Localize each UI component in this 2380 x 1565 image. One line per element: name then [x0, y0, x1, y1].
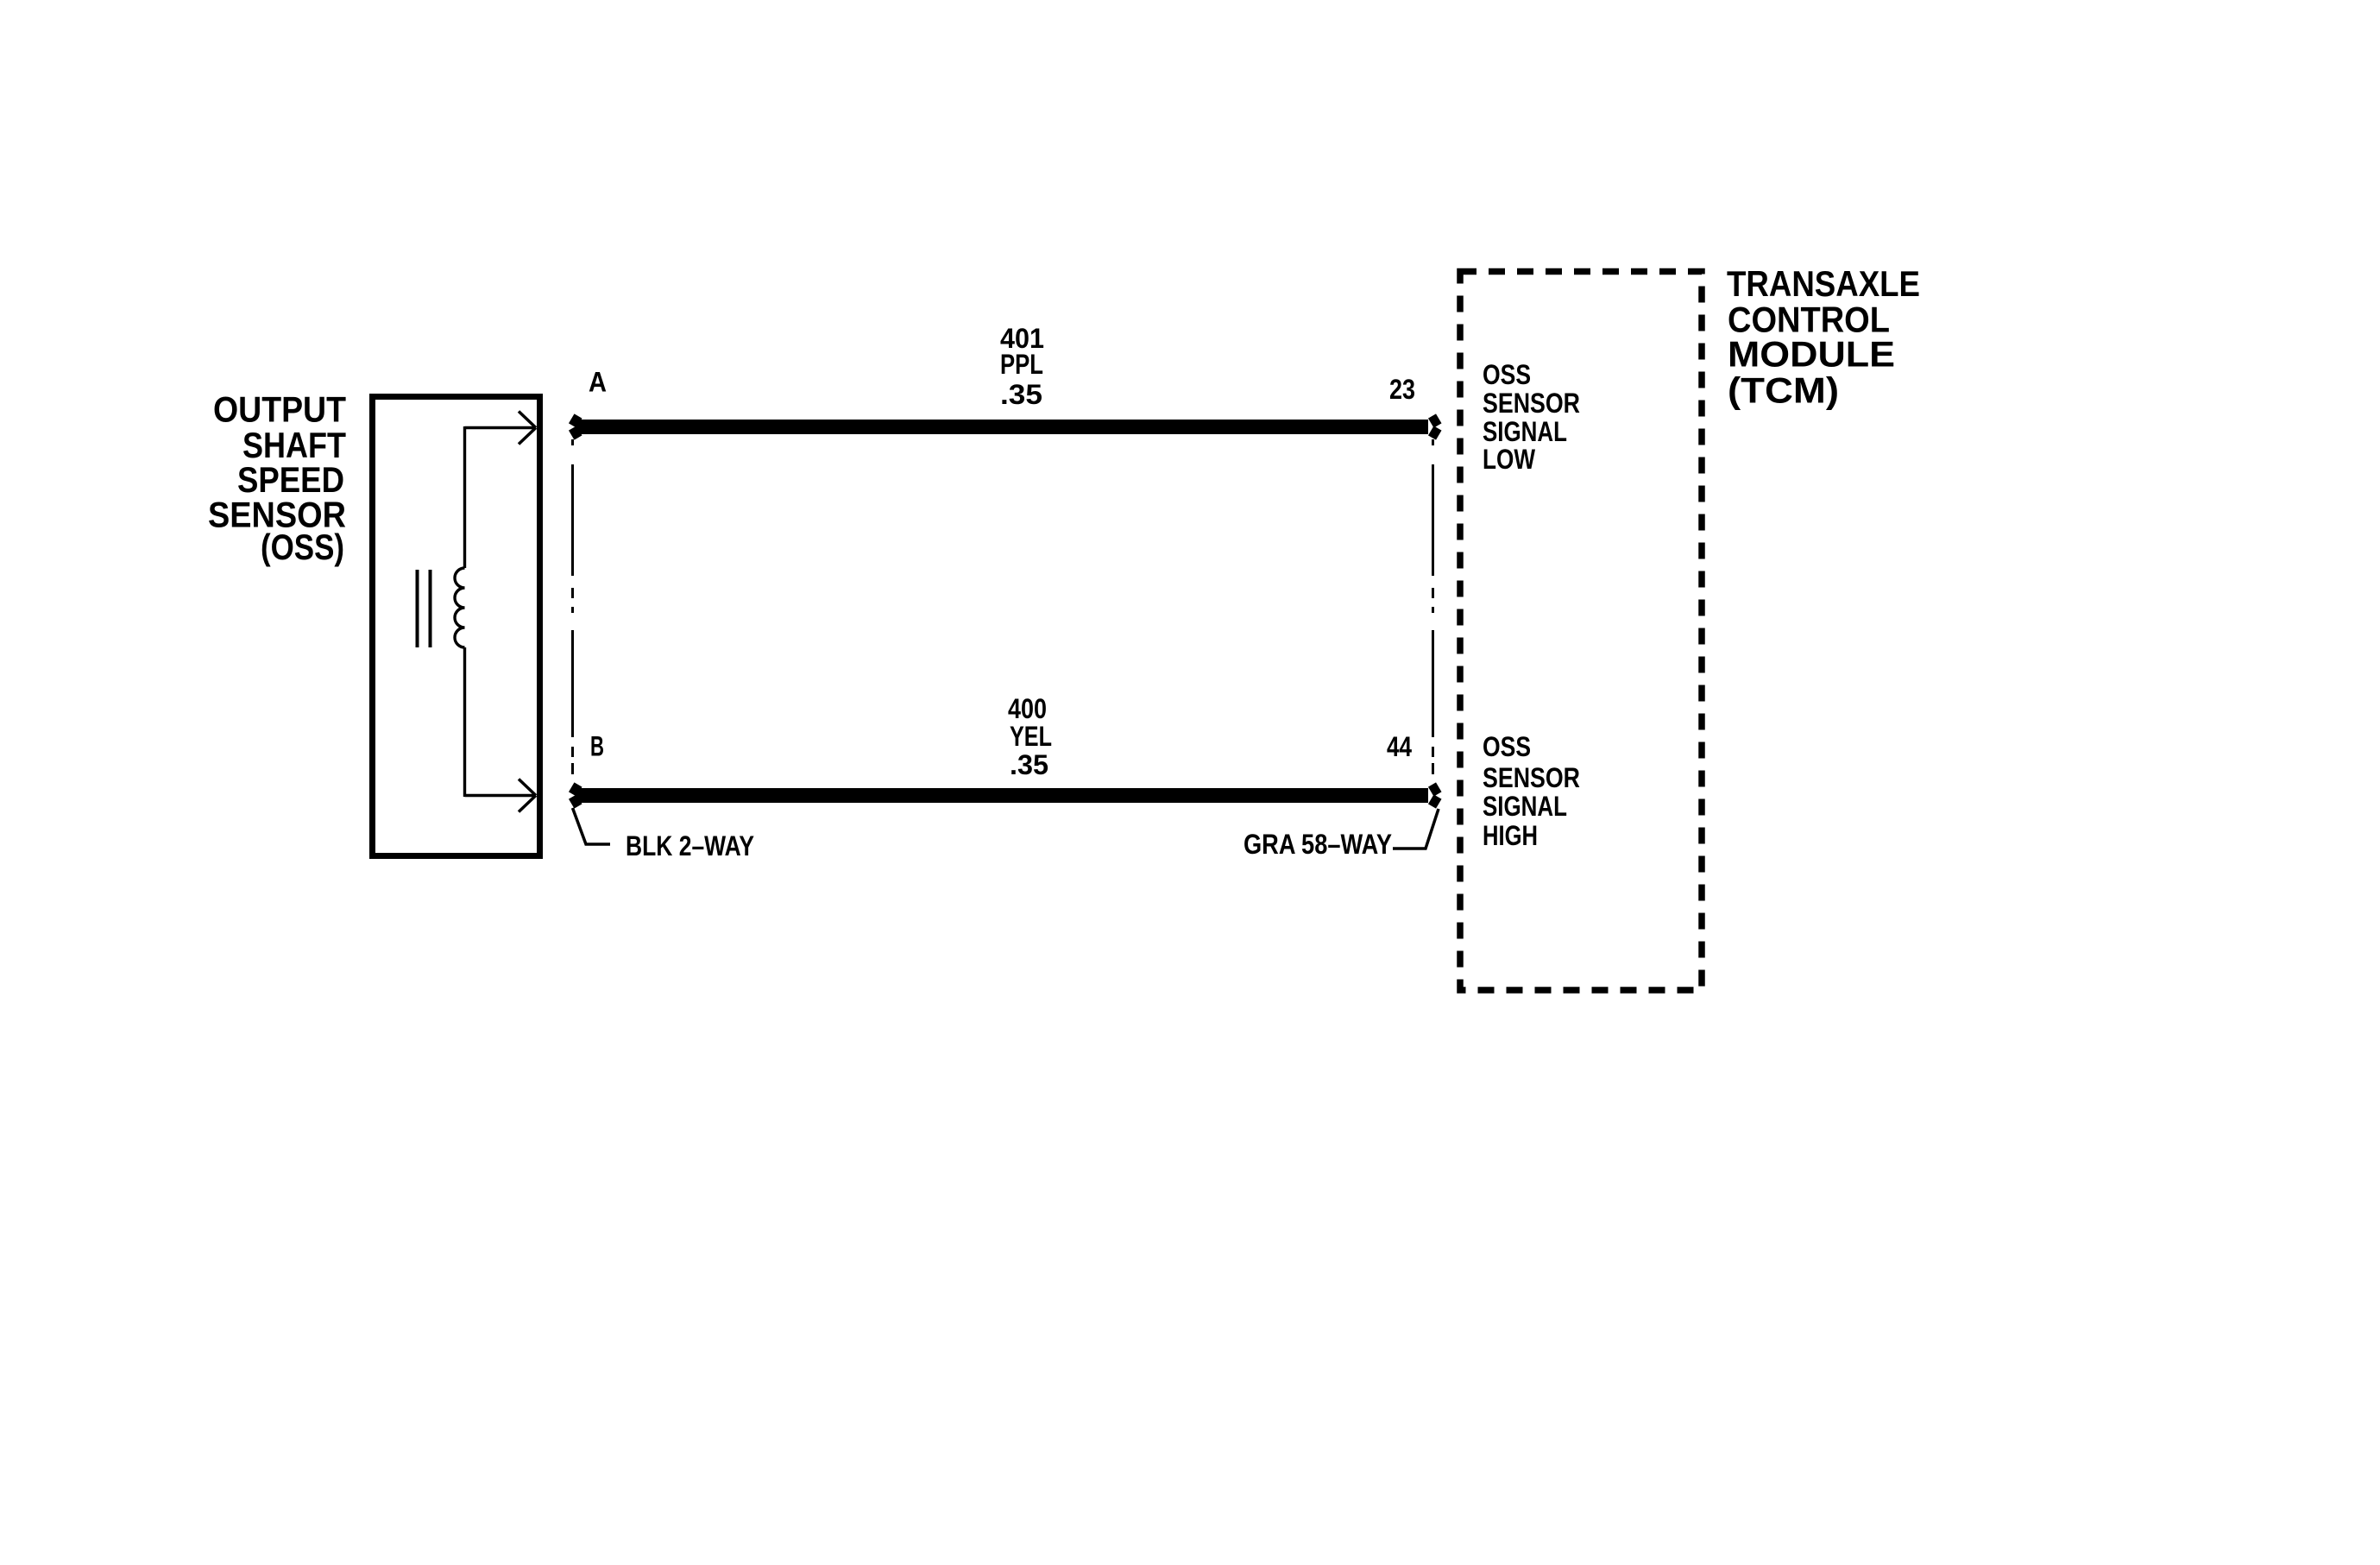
svg-text:SIGNAL: SIGNAL [1483, 791, 1567, 822]
svg-text:A: A [589, 367, 607, 398]
svg-text:BLK 2–WAY: BLK 2–WAY [626, 830, 754, 861]
svg-text:B: B [590, 731, 604, 762]
svg-text:PPL: PPL [1000, 349, 1043, 380]
svg-text:HIGH: HIGH [1483, 820, 1538, 851]
svg-text:(TCM): (TCM) [1728, 370, 1839, 411]
svg-text:MODULE: MODULE [1728, 334, 1895, 375]
svg-text:23: 23 [1389, 374, 1415, 405]
svg-text:44: 44 [1387, 731, 1412, 762]
svg-text:.35: .35 [1010, 749, 1048, 780]
svg-text:(OSS): (OSS) [261, 527, 344, 567]
svg-text:OUTPUT: OUTPUT [213, 389, 346, 430]
svg-text:.35: .35 [1000, 379, 1042, 410]
svg-text:SENSOR: SENSOR [1483, 388, 1580, 419]
svg-text:SIGNAL: SIGNAL [1483, 416, 1567, 447]
svg-text:GRA 58–WAY: GRA 58–WAY [1244, 829, 1392, 860]
svg-text:OSS: OSS [1483, 731, 1531, 762]
svg-text:SENSOR: SENSOR [1483, 762, 1580, 793]
svg-text:YEL: YEL [1010, 721, 1052, 752]
svg-text:400: 400 [1008, 693, 1047, 724]
svg-text:OSS: OSS [1483, 359, 1531, 390]
svg-text:LOW: LOW [1483, 444, 1536, 475]
svg-text:TRANSAXLE: TRANSAXLE [1727, 263, 1920, 304]
